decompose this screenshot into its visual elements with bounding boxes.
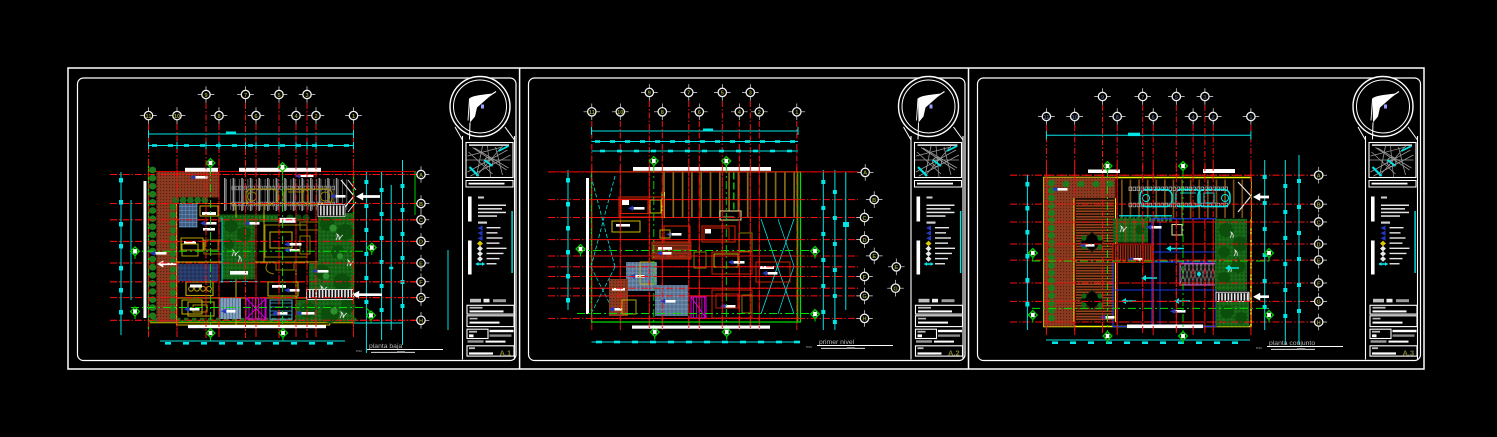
svg-text:10: 10 [174, 114, 180, 120]
svg-text:D: D [1317, 242, 1321, 248]
svg-text:H: H [862, 317, 866, 323]
svg-text:C: C [419, 218, 423, 224]
svg-text:1: 1 [795, 110, 798, 116]
svg-text:5: 5 [721, 91, 724, 97]
svg-text:6: 6 [254, 114, 257, 120]
svg-text:G: G [1317, 300, 1321, 306]
svg-text:2: 2 [1212, 115, 1215, 121]
svg-text:B: B [1317, 202, 1321, 208]
svg-text:3: 3 [749, 91, 752, 97]
svg-text:E: E [1317, 258, 1321, 264]
svg-text:5: 5 [277, 93, 280, 99]
svg-text:H: H [419, 319, 423, 325]
svg-text:1: 1 [1249, 115, 1252, 121]
svg-text:A: A [1317, 174, 1321, 180]
svg-text:D: D [862, 238, 866, 244]
svg-text:9: 9 [648, 91, 651, 97]
svg-text:3: 3 [305, 93, 308, 99]
svg-text:2: 2 [314, 114, 317, 120]
svg-text:E: E [894, 265, 898, 271]
svg-text:C: C [862, 216, 866, 222]
svg-text:H: H [1317, 320, 1321, 326]
svg-text:G: G [893, 287, 897, 293]
svg-text:A.2: A.2 [948, 349, 960, 358]
svg-text:10: 10 [1072, 115, 1078, 121]
svg-text:E: E [419, 261, 423, 267]
svg-text:G: G [419, 296, 423, 302]
svg-text:7: 7 [244, 93, 247, 99]
svg-text:G: G [862, 294, 866, 300]
svg-text:esc: esc [1256, 345, 1262, 350]
svg-text:9: 9 [1101, 95, 1104, 101]
svg-text:A.3: A.3 [1403, 349, 1415, 358]
svg-text:A: A [419, 173, 423, 179]
svg-text:C: C [1317, 220, 1321, 226]
svg-text:8: 8 [661, 110, 664, 116]
svg-text:A.1: A.1 [500, 349, 512, 358]
svg-text:2: 2 [758, 110, 761, 116]
svg-text:8: 8 [1116, 115, 1119, 121]
svg-text:6: 6 [1152, 115, 1155, 121]
svg-text:B: B [872, 198, 876, 204]
svg-text:11: 11 [1043, 115, 1049, 121]
svg-text:5: 5 [1175, 95, 1178, 101]
svg-text:B: B [419, 202, 423, 208]
svg-text:esc: esc [356, 348, 362, 353]
svg-text:11: 11 [589, 110, 595, 116]
svg-text:esc: esc [806, 344, 812, 349]
svg-text:F: F [863, 275, 867, 281]
svg-text:D: D [419, 240, 423, 246]
svg-text:7: 7 [1141, 95, 1144, 101]
svg-text:3: 3 [1203, 95, 1206, 101]
svg-text:A: A [863, 171, 867, 177]
svg-text:10: 10 [617, 110, 623, 116]
svg-text:F: F [1317, 281, 1321, 287]
svg-text:9: 9 [204, 93, 207, 99]
svg-text:6: 6 [698, 110, 701, 116]
svg-text:7: 7 [687, 91, 690, 97]
svg-text:8: 8 [217, 114, 220, 120]
svg-text:1: 1 [352, 114, 355, 120]
svg-text:11: 11 [146, 114, 152, 120]
svg-text:F: F [419, 280, 423, 286]
svg-text:E: E [872, 254, 876, 260]
